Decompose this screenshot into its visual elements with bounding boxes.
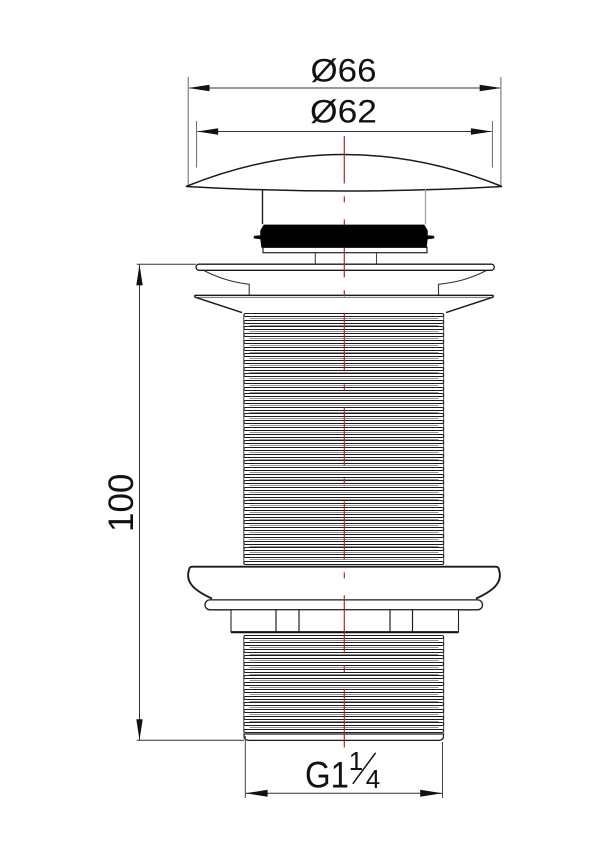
svg-text:G1: G1 bbox=[305, 754, 349, 796]
svg-text:4: 4 bbox=[366, 764, 380, 794]
svg-text:100: 100 bbox=[102, 474, 141, 532]
svg-text:Ø62: Ø62 bbox=[310, 94, 377, 130]
svg-text:Ø66: Ø66 bbox=[311, 52, 377, 88]
